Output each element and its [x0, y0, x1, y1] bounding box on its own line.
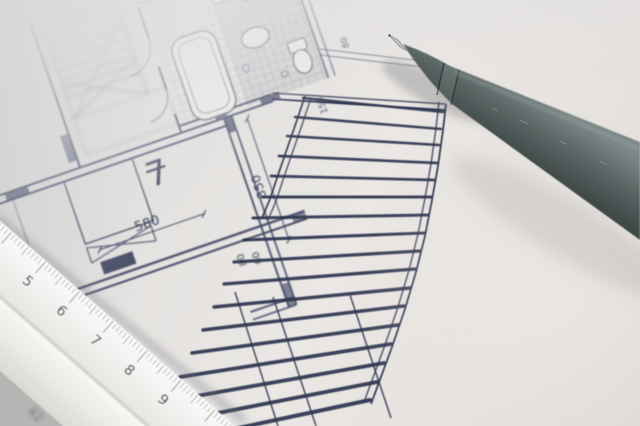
- pen: [376, 34, 640, 319]
- pen-tip: [389, 35, 407, 51]
- photo-scene: 7 580 80 60 350 150 80: [0, 0, 640, 426]
- foreground-objects: 4 5 6 7 8 9 42: [0, 0, 640, 426]
- pen-tip-point: [388, 34, 390, 36]
- ruler: 4 5 6 7 8 9 42: [0, 182, 272, 426]
